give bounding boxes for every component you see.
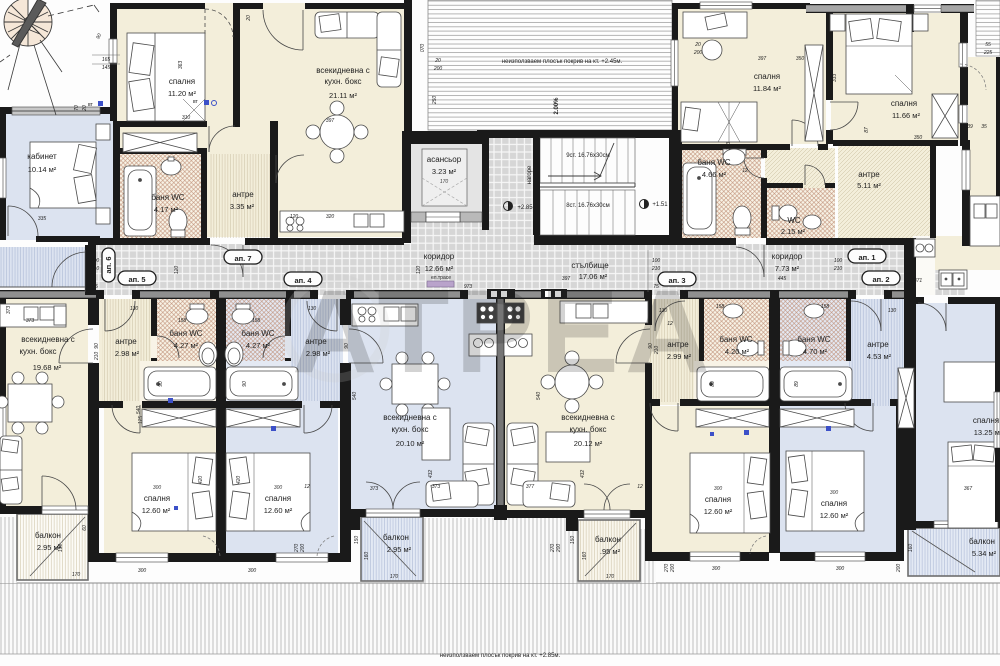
svg-text:397: 397 <box>562 276 571 282</box>
svg-text:373: 373 <box>6 306 12 315</box>
svg-text:300: 300 <box>248 568 257 574</box>
svg-text:200: 200 <box>556 544 562 554</box>
svg-text:баня WC: баня WC <box>697 158 730 167</box>
svg-text:377: 377 <box>526 484 535 490</box>
svg-text:неизползваем плосък покрив на: неизползваем плосък покрив на кт. +2.45м… <box>502 59 623 65</box>
svg-text:363: 363 <box>178 61 184 70</box>
svg-text:антре: антре <box>867 340 889 349</box>
svg-text:145: 145 <box>102 65 111 71</box>
svg-text:210: 210 <box>833 266 843 272</box>
svg-text:4.53 м²: 4.53 м² <box>867 352 892 361</box>
svg-text:225: 225 <box>983 50 993 56</box>
svg-text:антре: антре <box>232 190 254 199</box>
svg-text:+1.51: +1.51 <box>652 202 668 208</box>
svg-text:120: 120 <box>290 214 299 220</box>
svg-text:ап. 5: ап. 5 <box>128 275 145 284</box>
svg-text:432: 432 <box>428 470 434 479</box>
svg-text:200: 200 <box>670 564 676 574</box>
svg-text:12: 12 <box>742 168 748 174</box>
svg-text:300: 300 <box>712 566 721 572</box>
svg-text:+2.85: +2.85 <box>517 205 533 211</box>
svg-text:4.70 м²: 4.70 м² <box>803 347 828 356</box>
svg-text:90: 90 <box>158 381 164 387</box>
svg-text:420: 420 <box>236 476 242 485</box>
svg-text:350: 350 <box>796 56 805 62</box>
svg-text:антре: антре <box>305 337 327 346</box>
svg-text:вт: вт <box>88 102 94 108</box>
svg-text:125: 125 <box>138 416 144 425</box>
svg-text:12: 12 <box>304 484 310 490</box>
svg-text:вт: вт <box>193 99 199 105</box>
svg-text:335: 335 <box>38 216 47 222</box>
svg-text:200: 200 <box>300 544 306 554</box>
svg-text:антре: антре <box>667 340 689 349</box>
svg-text:спалня: спалня <box>144 494 170 503</box>
svg-text:ап. 3: ап. 3 <box>668 276 685 285</box>
svg-text:5.11 м²: 5.11 м² <box>857 181 881 190</box>
svg-text:210: 210 <box>90 266 100 272</box>
svg-text:158: 158 <box>178 318 187 324</box>
svg-text:коридор: коридор <box>424 252 455 261</box>
svg-text:89: 89 <box>710 381 716 387</box>
svg-text:2.98 м²: 2.98 м² <box>306 349 331 358</box>
svg-text:210: 210 <box>651 266 661 272</box>
svg-text:спалня: спалня <box>973 416 999 425</box>
svg-text:55: 55 <box>985 42 991 48</box>
svg-text:250: 250 <box>432 96 438 106</box>
svg-text:13.25 м²: 13.25 м² <box>974 428 1000 437</box>
svg-text:ап. 2: ап. 2 <box>872 275 889 284</box>
svg-text:20: 20 <box>694 42 701 48</box>
svg-text:всекидневна с: всекидневна с <box>383 413 436 422</box>
svg-text:кухн. бокс: кухн. бокс <box>391 425 428 434</box>
svg-text:70: 70 <box>74 105 80 111</box>
svg-text:300: 300 <box>138 568 147 574</box>
svg-text:300: 300 <box>714 486 723 492</box>
svg-text:всекидневна с: всекидневна с <box>21 335 74 344</box>
svg-text:75: 75 <box>653 284 659 290</box>
svg-text:стълбище: стълбище <box>571 261 609 270</box>
svg-text:200: 200 <box>433 66 443 72</box>
svg-text:спалня: спалня <box>754 72 780 81</box>
svg-text:150: 150 <box>88 536 94 545</box>
svg-text:445: 445 <box>778 276 787 282</box>
svg-text:373: 373 <box>26 318 35 324</box>
svg-text:35: 35 <box>981 124 987 130</box>
svg-text:5.34 м²: 5.34 м² <box>972 549 997 558</box>
svg-text:12.60 м²: 12.60 м² <box>704 507 733 516</box>
svg-text:баня WC: баня WC <box>719 335 752 344</box>
svg-text:310: 310 <box>182 115 191 121</box>
svg-text:540: 540 <box>352 392 358 401</box>
svg-text:320: 320 <box>326 214 335 220</box>
svg-text:300: 300 <box>153 485 162 491</box>
svg-text:150: 150 <box>354 536 360 545</box>
svg-text:21.11 м²: 21.11 м² <box>329 91 357 100</box>
svg-text:кухн. бокс: кухн. бокс <box>19 347 56 356</box>
svg-text:371: 371 <box>914 278 923 284</box>
svg-text:2.95 м²: 2.95 м² <box>387 545 412 554</box>
svg-text:120: 120 <box>174 266 180 275</box>
svg-text:200: 200 <box>896 564 902 574</box>
svg-text:неизползваем плосък покрив на: неизползваем плосък покрив на кт. +2.85м… <box>440 653 561 659</box>
svg-text:спалня: спалня <box>891 99 917 108</box>
svg-text:7.73 м²: 7.73 м² <box>775 264 800 273</box>
svg-text:300: 300 <box>274 485 283 491</box>
svg-text:190: 190 <box>58 544 64 553</box>
svg-text:170: 170 <box>606 574 615 580</box>
svg-text:балкон: балкон <box>595 535 621 544</box>
svg-text:300: 300 <box>836 566 845 572</box>
svg-text:WC: WC <box>787 216 801 225</box>
svg-text:спалня: спалня <box>821 499 847 508</box>
svg-text:2.98 м²: 2.98 м² <box>115 349 140 358</box>
svg-text:973: 973 <box>464 284 473 290</box>
svg-text:3.23 м²: 3.23 м² <box>432 167 457 176</box>
svg-text:спалня: спалня <box>265 494 291 503</box>
svg-text:160: 160 <box>582 552 588 561</box>
svg-text:200: 200 <box>693 50 703 56</box>
svg-text:ап. 4: ап. 4 <box>294 276 312 285</box>
svg-text:420: 420 <box>198 476 204 485</box>
svg-text:балкон: балкон <box>35 531 61 540</box>
svg-text:300: 300 <box>830 490 839 496</box>
svg-text:4.27 м²: 4.27 м² <box>246 341 271 350</box>
svg-text:.95 м²: .95 м² <box>600 547 621 556</box>
svg-text:160: 160 <box>364 552 370 561</box>
svg-text:спалня: спалня <box>705 495 731 504</box>
svg-text:4.20 м²: 4.20 м² <box>725 347 750 356</box>
svg-text:12: 12 <box>667 321 673 327</box>
svg-text:20: 20 <box>82 105 88 112</box>
svg-text:60: 60 <box>82 525 88 531</box>
svg-text:балкон: балкон <box>969 537 995 546</box>
svg-text:160: 160 <box>908 544 914 553</box>
svg-text:10.14 м²: 10.14 м² <box>28 165 57 174</box>
svg-text:20.10 м²: 20.10 м² <box>396 439 425 448</box>
svg-text:асансьор: асансьор <box>427 155 462 164</box>
svg-text:кухн. бокс: кухн. бокс <box>569 425 606 434</box>
svg-text:3.35 м²: 3.35 м² <box>230 202 255 211</box>
svg-text:всекидневна с: всекидневна с <box>316 66 369 75</box>
svg-text:397: 397 <box>758 56 767 62</box>
svg-text:130: 130 <box>308 306 317 312</box>
svg-text:12.60 м²: 12.60 м² <box>264 506 293 515</box>
svg-text:333: 333 <box>726 142 732 151</box>
svg-text:165: 165 <box>102 57 111 63</box>
svg-text:210: 210 <box>94 352 100 362</box>
svg-text:20: 20 <box>246 15 252 22</box>
svg-text:100: 100 <box>652 258 661 264</box>
svg-text:90: 90 <box>94 343 100 349</box>
svg-text:ел.трасе: ел.трасе <box>431 275 451 281</box>
svg-text:8ст. 16.76х30см: 8ст. 16.76х30см <box>566 203 610 209</box>
svg-text:540: 540 <box>536 392 542 401</box>
svg-text:90: 90 <box>242 381 248 387</box>
svg-text:9ст. 16.76х30см: 9ст. 16.76х30см <box>566 153 610 159</box>
svg-text:антре: антре <box>858 170 880 179</box>
svg-text:кабинет: кабинет <box>27 152 57 161</box>
svg-text:12.60 м²: 12.60 м² <box>142 506 171 515</box>
svg-text:158: 158 <box>821 304 830 310</box>
svg-text:2.00%: 2.00% <box>554 97 560 115</box>
svg-text:100: 100 <box>834 258 843 264</box>
svg-text:2.15 м²: 2.15 м² <box>781 227 806 236</box>
svg-text:397: 397 <box>326 118 335 124</box>
svg-text:коридор: коридор <box>772 252 803 261</box>
svg-text:150: 150 <box>570 536 576 545</box>
svg-text:баня WC: баня WC <box>151 193 184 202</box>
svg-text:070: 070 <box>420 44 426 53</box>
svg-text:всекидневна с: всекидневна с <box>561 413 614 422</box>
svg-text:12.66 м²: 12.66 м² <box>425 264 454 273</box>
svg-text:17.06 м²: 17.06 м² <box>579 272 608 281</box>
svg-text:кухн. бокс: кухн. бокс <box>324 77 361 86</box>
svg-text:12.60 м²: 12.60 м² <box>820 511 849 520</box>
svg-text:210: 210 <box>654 346 660 356</box>
svg-text:нагоре: нагоре <box>527 165 533 184</box>
svg-text:ап. 6: ап. 6 <box>104 256 113 273</box>
svg-text:373: 373 <box>432 484 441 490</box>
svg-text:90: 90 <box>344 343 350 349</box>
svg-text:20: 20 <box>434 58 441 64</box>
svg-text:130: 130 <box>659 308 668 314</box>
svg-text:540: 540 <box>136 406 142 415</box>
svg-text:баня WC: баня WC <box>241 329 274 338</box>
svg-text:170: 170 <box>72 572 81 578</box>
svg-text:4.27 м²: 4.27 м² <box>174 341 199 350</box>
svg-text:ап. 1: ап. 1 <box>858 253 875 262</box>
svg-text:балкон: балкон <box>383 533 409 542</box>
svg-text:130: 130 <box>130 306 139 312</box>
svg-text:баня WC: баня WC <box>797 335 830 344</box>
svg-text:87: 87 <box>864 127 870 133</box>
svg-text:11.66 м²: 11.66 м² <box>892 111 920 120</box>
svg-text:373: 373 <box>370 486 379 492</box>
svg-text:ап. 7: ап. 7 <box>234 254 251 263</box>
svg-text:158: 158 <box>716 304 725 310</box>
svg-text:39: 39 <box>967 124 973 130</box>
svg-text:2.99 м²: 2.99 м² <box>667 352 692 361</box>
svg-text:100: 100 <box>91 258 100 264</box>
svg-text:25: 25 <box>91 284 98 290</box>
svg-text:170: 170 <box>440 179 449 185</box>
svg-text:баня WC: баня WC <box>169 329 202 338</box>
svg-text:4.17 м²: 4.17 м² <box>154 205 179 214</box>
svg-text:4.66 м²: 4.66 м² <box>702 170 727 179</box>
svg-text:12: 12 <box>637 484 643 490</box>
svg-text:11.84 м²: 11.84 м² <box>753 84 781 93</box>
svg-text:89: 89 <box>794 381 800 387</box>
svg-text:11.20 м²: 11.20 м² <box>168 89 196 98</box>
svg-text:антре: антре <box>115 337 137 346</box>
svg-text:120: 120 <box>416 266 422 275</box>
svg-text:170: 170 <box>390 574 399 580</box>
svg-text:130: 130 <box>888 308 897 314</box>
svg-text:333: 333 <box>832 74 838 83</box>
svg-text:432: 432 <box>580 470 586 479</box>
svg-text:19.68 м²: 19.68 м² <box>33 363 62 372</box>
svg-text:367: 367 <box>964 486 973 492</box>
svg-text:спалня: спалня <box>169 77 195 86</box>
svg-text:350: 350 <box>914 135 923 141</box>
svg-text:158: 158 <box>252 318 261 324</box>
svg-text:20.12 м²: 20.12 м² <box>574 439 603 448</box>
